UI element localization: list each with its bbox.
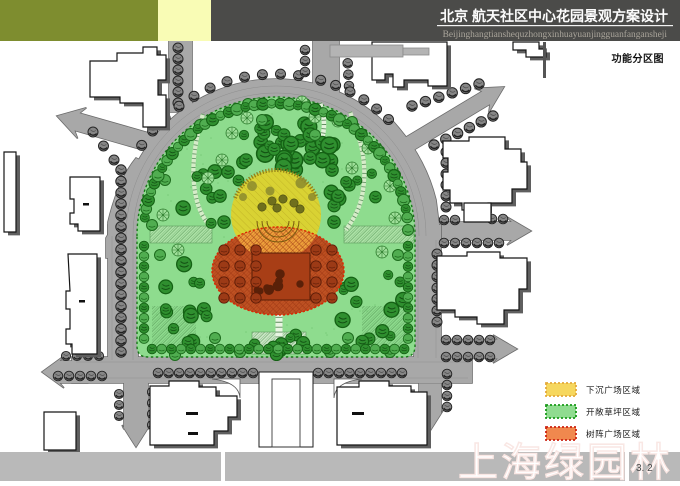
- svg-text:树阵广场区域: 树阵广场区域: [586, 429, 641, 439]
- svg-text:开敞草坪区域: 开敞草坪区域: [586, 407, 641, 417]
- svg-text:3. 2: 3. 2: [636, 463, 653, 474]
- svg-text:Beijinghangtianshequzhongxinhu: Beijinghangtianshequzhongxinhuayuanjingg…: [443, 29, 668, 40]
- svg-text:上海绿园林: 上海绿园林: [458, 440, 673, 481]
- svg-text:下沉广场区域: 下沉广场区域: [586, 385, 641, 395]
- svg-text:北京 航天社区中心花园景观方案设计: 北京 航天社区中心花园景观方案设计: [440, 8, 668, 24]
- svg-text:功能分区图: 功能分区图: [612, 52, 665, 65]
